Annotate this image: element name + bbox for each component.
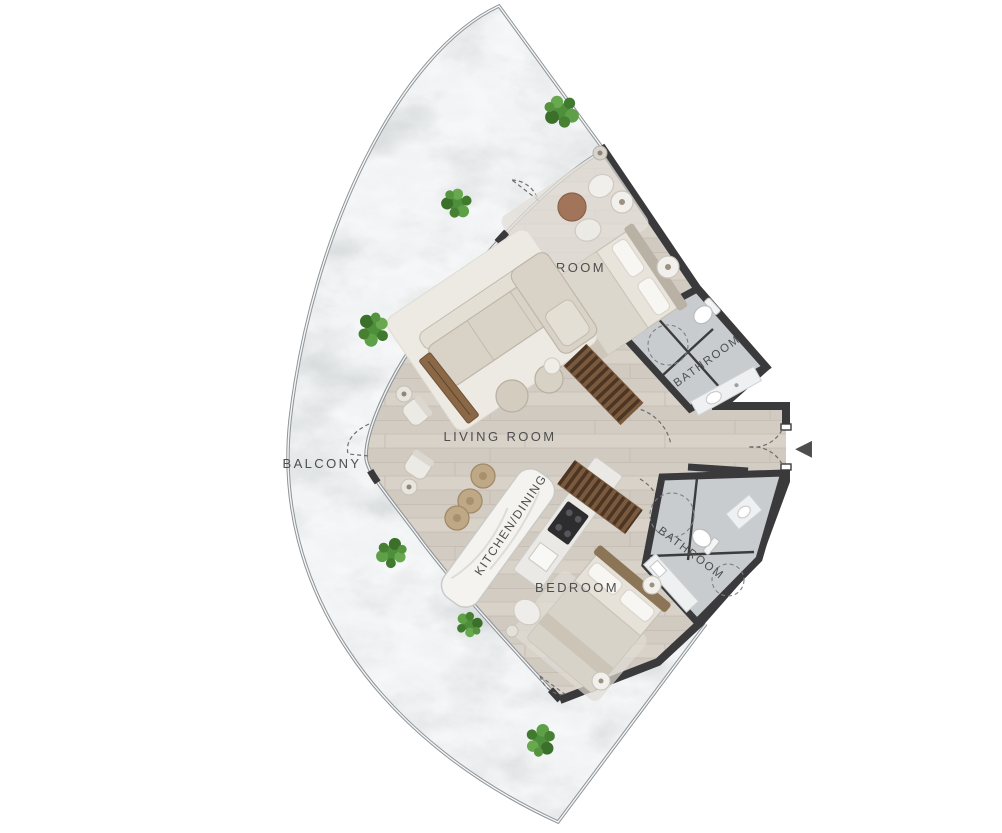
balcony-label: BALCONY xyxy=(283,456,362,471)
bedroom-bottom-label: BEDROOM xyxy=(535,580,619,595)
living-room-pouf xyxy=(496,380,528,412)
entry-arrow-icon: ◀ xyxy=(795,435,812,460)
floor-plan: ◀ BATHROOM xyxy=(0,0,1002,833)
living-room-side-table xyxy=(544,358,560,374)
floor-plan-canvas: ◀ BATHROOM xyxy=(0,0,1002,833)
living-room-label: LIVING ROOM xyxy=(443,429,556,444)
